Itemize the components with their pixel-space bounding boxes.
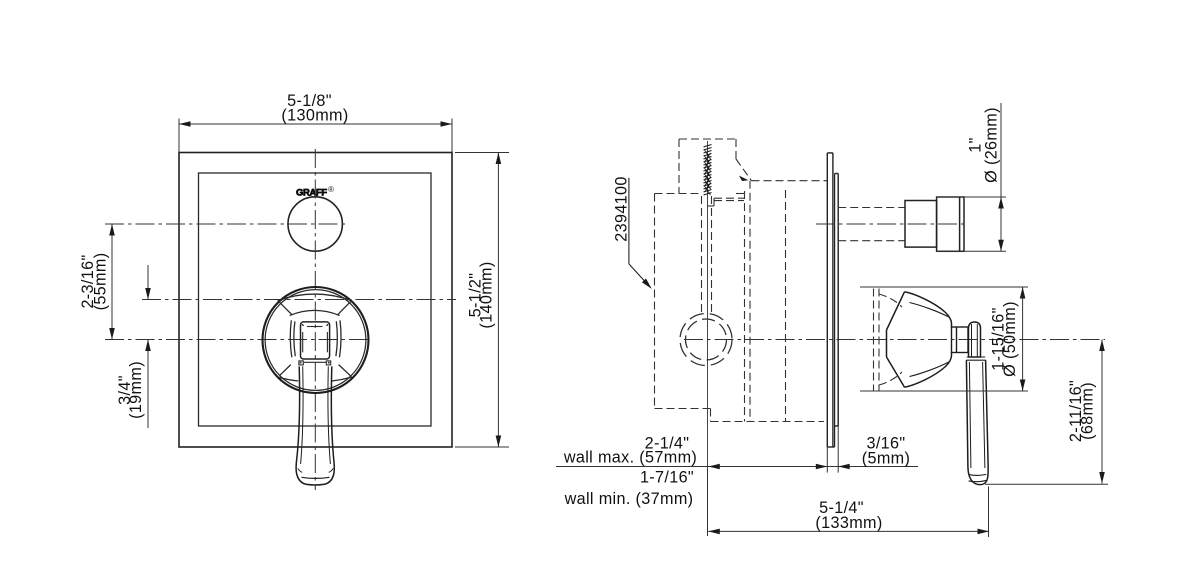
svg-text:(140mm): (140mm): [478, 261, 496, 328]
svg-text:wall min. (37mm): wall min. (37mm): [564, 490, 694, 508]
svg-text:®: ®: [328, 185, 334, 194]
svg-text:Ø (50mm): Ø (50mm): [1001, 301, 1019, 377]
svg-text:(5mm): (5mm): [862, 450, 911, 468]
svg-text:(68mm): (68mm): [1079, 382, 1097, 440]
svg-text:(133mm): (133mm): [815, 514, 882, 532]
svg-text:(19mm): (19mm): [127, 361, 145, 419]
svg-text:2394100: 2394100: [613, 176, 631, 241]
svg-text:wall max. (57mm): wall max. (57mm): [563, 449, 697, 467]
svg-text:Ø (26mm): Ø (26mm): [983, 107, 1001, 183]
svg-text:(130mm): (130mm): [281, 107, 348, 125]
svg-text:1-7/16": 1-7/16": [640, 469, 694, 487]
svg-text:(55mm): (55mm): [92, 253, 110, 311]
